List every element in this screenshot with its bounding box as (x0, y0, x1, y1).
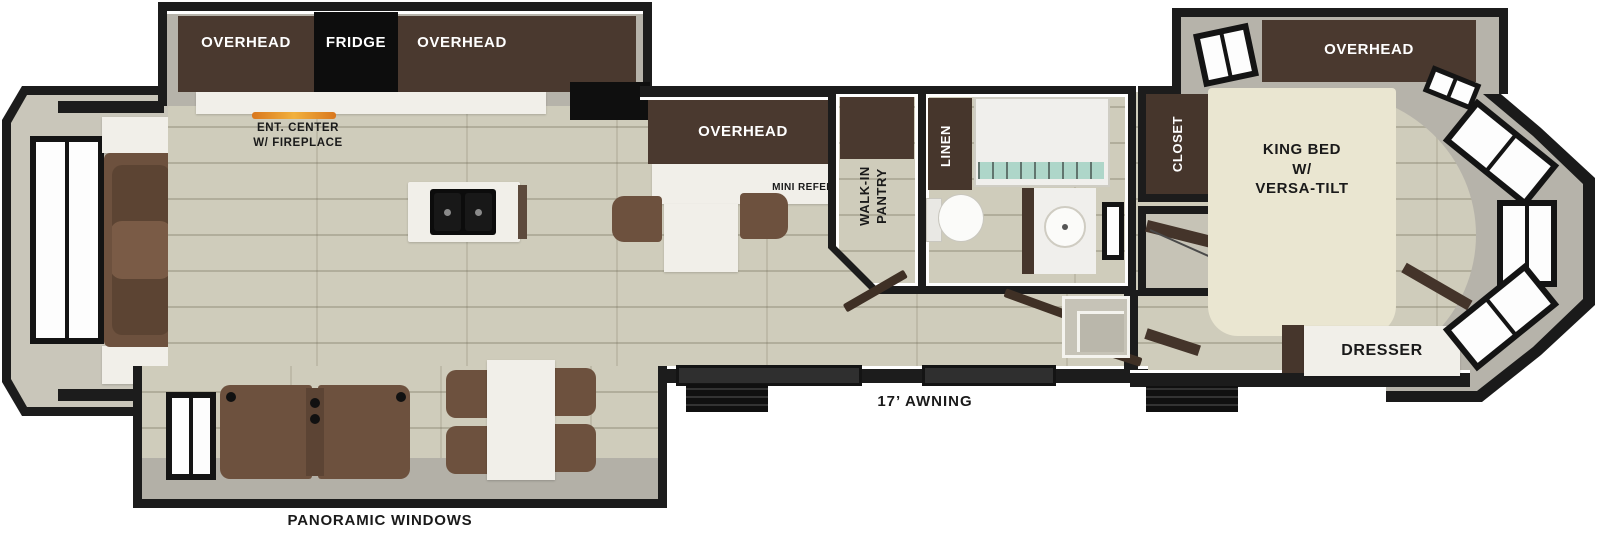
island-edge (518, 185, 527, 239)
pantry-line1: WALK-IN (857, 166, 872, 226)
awning-label: 17’ AWNING (825, 392, 1025, 412)
ent-center-label: ENT. CENTER W/ FIREPLACE (218, 121, 378, 151)
dinette-chair (446, 426, 490, 474)
cupholder (226, 392, 236, 402)
vanity-edge (1022, 188, 1034, 274)
bedroom-steps (1062, 296, 1130, 358)
sink-drain (1062, 224, 1068, 230)
window-pane (1224, 30, 1252, 75)
bathroom-vanity (1034, 188, 1096, 274)
dinette-chair (552, 424, 596, 472)
king-bed (1208, 88, 1396, 336)
dinette-table (487, 360, 555, 480)
overhead-label-bedroom: OVERHEAD (1262, 40, 1476, 60)
bottom-wall-window (922, 365, 1056, 386)
overhead-label-kitchen-right: OVERHEAD (398, 33, 526, 53)
floorplan-canvas: OVERHEAD FRIDGE OVERHEAD ENT. CENTER W/ … (0, 0, 1600, 538)
window-pane (69, 142, 98, 338)
range-cooktop (570, 82, 650, 120)
bathroom-window (1102, 202, 1124, 260)
dinette-chair (446, 370, 490, 418)
rear-wall-window (30, 136, 104, 344)
entry-door-opening (676, 365, 862, 386)
sink-drain (444, 209, 451, 216)
sofa-cushion (112, 165, 170, 335)
linen-label: LINEN (932, 98, 960, 194)
window-pane (1107, 207, 1119, 255)
window-pane (36, 142, 65, 338)
king-bed-line2: W/ (1292, 161, 1312, 178)
king-bed-line3: VERSA-TILT (1255, 180, 1348, 197)
pantry-line2: PANTRY (874, 168, 889, 224)
window-pane (1450, 80, 1474, 104)
dinette-chair (552, 368, 596, 416)
window-pane (1200, 35, 1228, 80)
cupholder (396, 392, 406, 402)
main-entry-step (686, 384, 768, 412)
bedroom-entry-step (1146, 386, 1238, 412)
kitchen-counter (196, 92, 546, 114)
island-double-sink (430, 189, 496, 235)
sink-drain (475, 209, 482, 216)
bar-stool-right (740, 193, 788, 239)
window-pane (172, 398, 189, 474)
window-pane (1429, 72, 1453, 96)
vanity-sink (1044, 206, 1086, 248)
dresser-side-cabinet (1282, 325, 1304, 373)
cupholder (310, 414, 320, 424)
shower-water (978, 162, 1104, 179)
window-pane (1529, 206, 1551, 281)
toilet (938, 194, 984, 242)
king-bed-line1: KING BED (1263, 141, 1341, 158)
window-pane (193, 398, 210, 474)
fridge-label: FRIDGE (314, 33, 398, 53)
dresser-label: DRESSER (1341, 341, 1423, 362)
slideout-window (166, 392, 216, 480)
rear-top-window (58, 101, 164, 113)
refrigerator (314, 12, 398, 100)
ent-center-line1: ENT. CENTER (257, 122, 339, 134)
king-bed-label: KING BED W/ VERSA-TILT (1208, 140, 1396, 199)
cupholder (310, 398, 320, 408)
step-tread (1077, 311, 1124, 352)
dresser: DRESSER (1304, 326, 1460, 376)
pantry-label: WALK-IN PANTRY (848, 136, 900, 256)
overhead-label-bar: OVERHEAD (648, 122, 838, 142)
overhead-label-kitchen-left: OVERHEAD (178, 33, 314, 53)
bar-stool-left (612, 196, 662, 242)
ent-center-line2: W/ FIREPLACE (253, 137, 343, 149)
fireplace-flame (252, 112, 336, 119)
kitchen-overhead-cabinets (178, 16, 636, 92)
panoramic-windows-label: PANORAMIC WINDOWS (230, 511, 530, 531)
closet-label: CLOSET (1164, 76, 1192, 212)
bedroom-window-left (1193, 23, 1259, 87)
top-wall-segment (640, 86, 840, 100)
bar-counter-column (664, 204, 738, 272)
